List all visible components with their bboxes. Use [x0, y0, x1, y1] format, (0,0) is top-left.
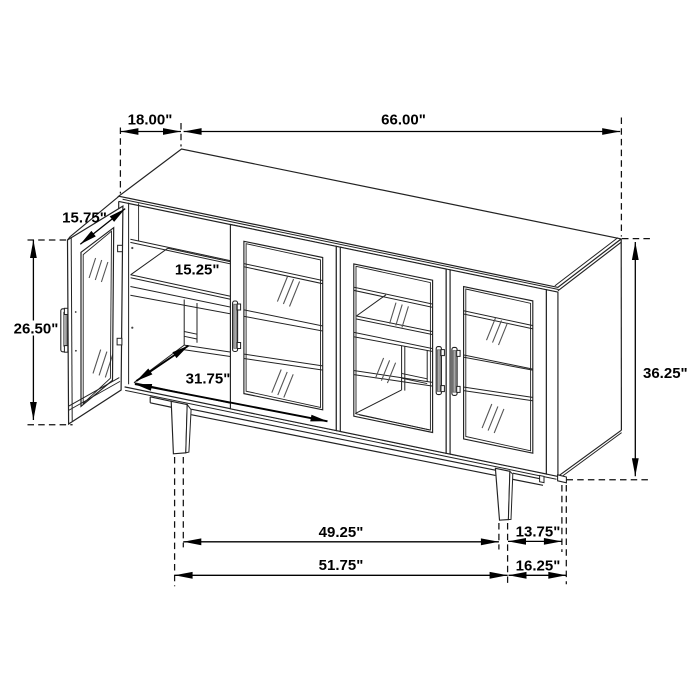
- svg-text:26.50": 26.50": [14, 321, 59, 338]
- svg-text:15.75": 15.75": [62, 210, 107, 227]
- svg-text:49.25": 49.25": [319, 524, 364, 541]
- svg-text:16.25": 16.25": [516, 558, 561, 575]
- svg-text:51.75": 51.75": [319, 557, 364, 574]
- svg-text:13.75": 13.75": [516, 524, 561, 541]
- svg-text:31.75": 31.75": [186, 371, 231, 388]
- svg-text:36.25": 36.25": [643, 365, 688, 382]
- svg-text:18.00": 18.00": [128, 112, 173, 129]
- svg-text:15.25": 15.25": [175, 262, 220, 279]
- svg-text:66.00": 66.00": [381, 112, 426, 129]
